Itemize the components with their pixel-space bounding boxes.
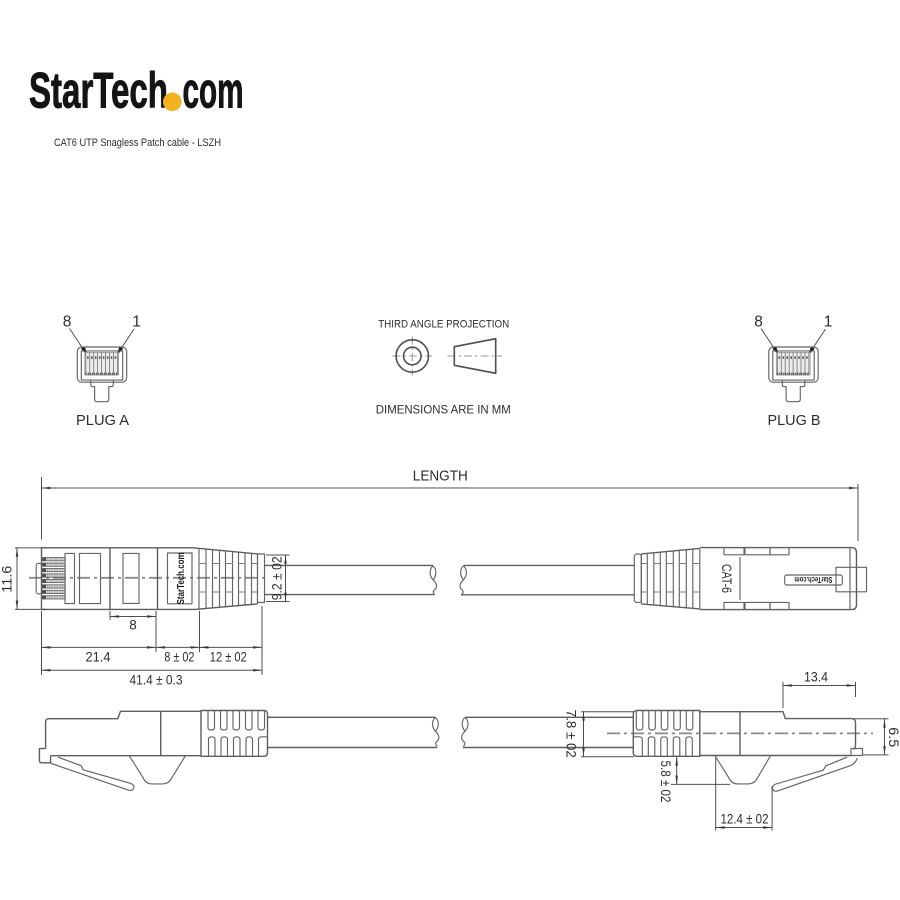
svg-text:6.5: 6.5 — [886, 727, 900, 747]
svg-text:DIMENSIONS ARE IN MM: DIMENSIONS ARE IN MM — [376, 403, 511, 417]
svg-text:8 ± 02: 8 ± 02 — [164, 650, 194, 665]
svg-text:StarTech: StarTech — [29, 62, 168, 119]
svg-text:5.8 ± 02: 5.8 ± 02 — [658, 761, 673, 803]
svg-text:PLUG B: PLUG B — [768, 412, 821, 429]
svg-text:21.4: 21.4 — [86, 650, 111, 665]
svg-text:PLUG A: PLUG A — [76, 412, 129, 429]
svg-text:CAT-6: CAT-6 — [719, 564, 734, 593]
svg-text:LENGTH: LENGTH — [413, 468, 468, 485]
svg-text:com: com — [183, 62, 244, 119]
svg-text:41.4 ± 0.3: 41.4 ± 0.3 — [130, 673, 183, 688]
svg-text:12.4 ± 02: 12.4 ± 02 — [721, 812, 769, 827]
svg-text:StarTech.com: StarTech.com — [175, 552, 187, 604]
svg-text:12 ± 02: 12 ± 02 — [210, 650, 247, 665]
svg-text:1: 1 — [132, 314, 141, 331]
svg-text:11.6: 11.6 — [0, 566, 15, 593]
svg-text:13.4: 13.4 — [804, 670, 828, 685]
svg-text:9.2 ± 02: 9.2 ± 02 — [270, 556, 285, 600]
svg-text:7.8 ± 02: 7.8 ± 02 — [564, 710, 579, 758]
svg-text:8: 8 — [63, 314, 72, 331]
svg-text:8: 8 — [129, 618, 137, 633]
svg-text:THIRD ANGLE PROJECTION: THIRD ANGLE PROJECTION — [378, 319, 509, 331]
svg-text:StarTech.com: StarTech.com — [795, 575, 833, 584]
svg-text:CAT6 UTP Snagless Patch cable: CAT6 UTP Snagless Patch cable - LSZH — [54, 137, 221, 149]
